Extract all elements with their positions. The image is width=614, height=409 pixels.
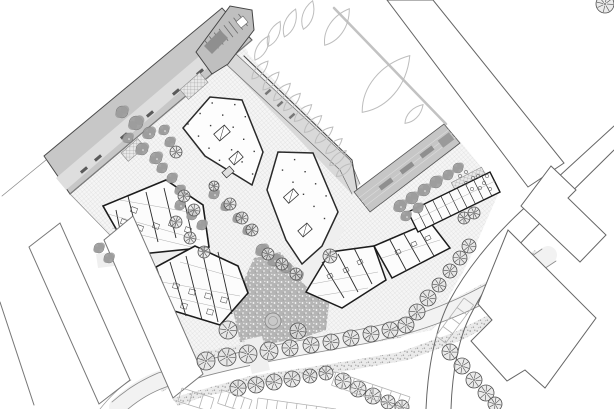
tree-icon (284, 371, 300, 387)
tree-icon (468, 207, 480, 219)
tree-icon (453, 251, 467, 265)
tree-icon (596, 0, 614, 13)
tree-icon (365, 388, 381, 404)
tree-icon (239, 345, 257, 363)
tree-icon (170, 216, 182, 228)
tree-icon (323, 249, 337, 263)
tree-icon (290, 268, 302, 280)
tree-icon (188, 204, 200, 216)
tree-icon (219, 321, 237, 339)
tree-icon (454, 358, 470, 374)
tree-icon (432, 278, 446, 292)
tree-icon (420, 290, 436, 306)
tree-icon (224, 198, 236, 210)
tree-icon (198, 246, 210, 258)
tree-icon (248, 377, 264, 393)
tree-icon (488, 397, 502, 409)
tree-icon (398, 317, 414, 333)
tree-icon (290, 323, 306, 339)
tree-icon (246, 224, 258, 236)
tree-icon (363, 326, 379, 342)
tree-icon (343, 330, 359, 346)
tree-icon (209, 181, 219, 191)
tree-icon (303, 337, 319, 353)
tree-icon (276, 258, 288, 270)
tree-icon (197, 352, 215, 370)
tree-icon (462, 239, 476, 253)
site-plan (0, 0, 614, 409)
tree-icon (443, 264, 457, 278)
tree-icon (236, 212, 248, 224)
tree-icon (178, 190, 190, 202)
shrub-mass (93, 243, 105, 254)
site-plan-canvas (0, 0, 614, 409)
tree-icon (282, 340, 298, 356)
tree-icon (303, 369, 317, 383)
tree-icon (466, 372, 482, 388)
tree-icon (409, 304, 425, 320)
tree-icon (184, 232, 196, 244)
tree-icon (319, 366, 333, 380)
tree-icon (262, 248, 274, 260)
tree-icon (442, 344, 458, 360)
tree-icon (170, 146, 182, 158)
west-tip-line (2, 160, 46, 196)
tree-icon (218, 348, 236, 366)
tree-icon (266, 374, 282, 390)
context-strip-west-3 (0, 302, 34, 405)
tree-icon (382, 322, 398, 338)
tree-icon (260, 342, 278, 360)
plaza-fountain-outer (265, 313, 281, 329)
tree-icon (323, 334, 339, 350)
